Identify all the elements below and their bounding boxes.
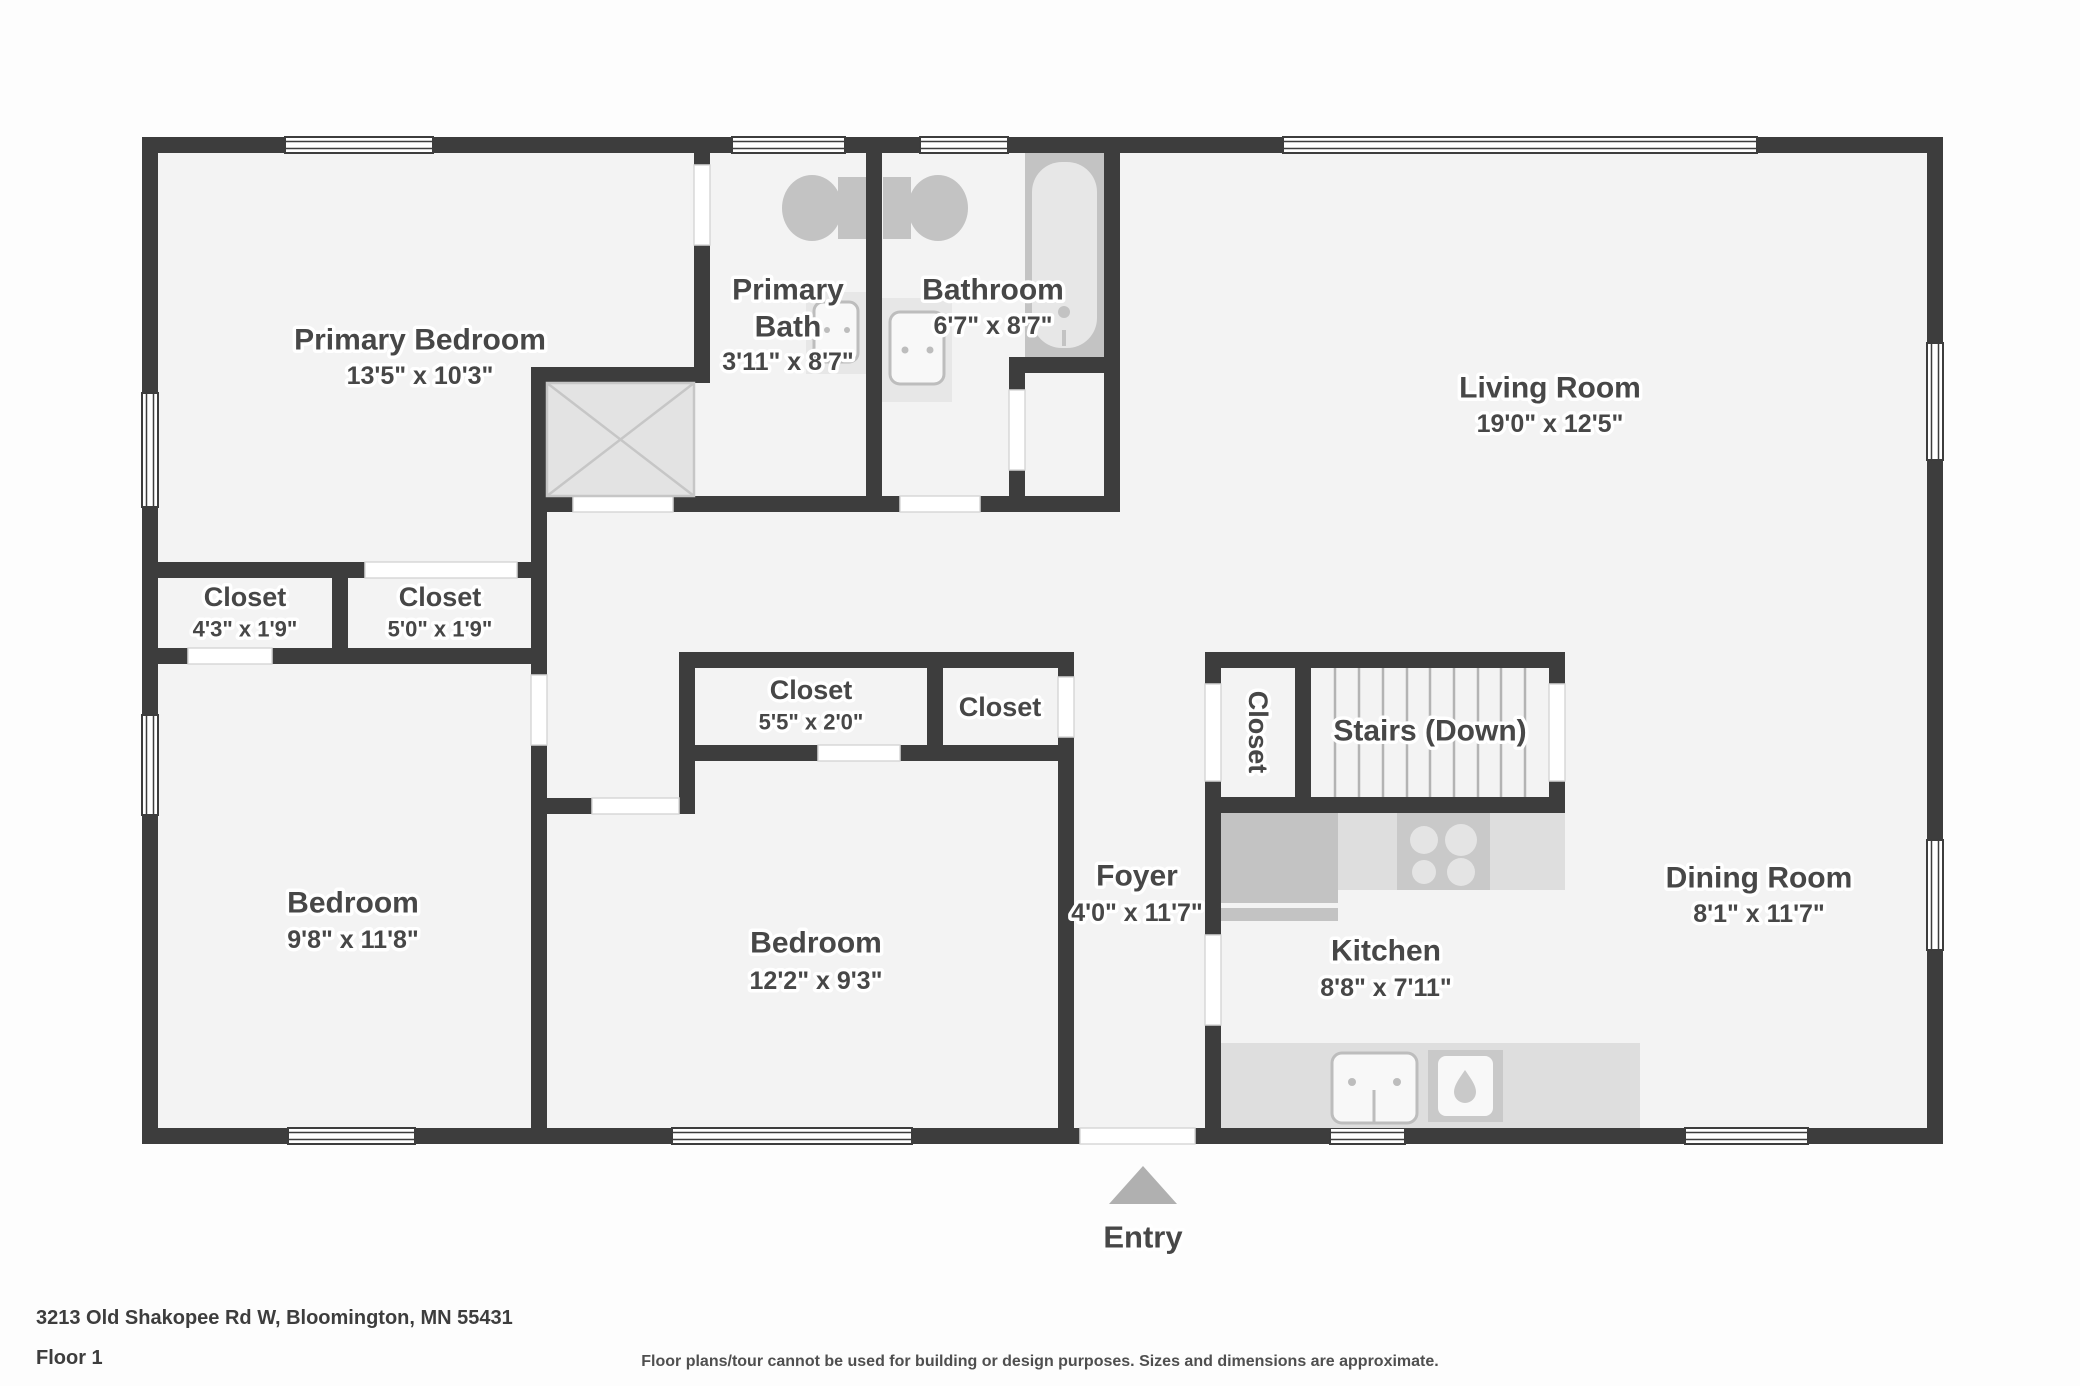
- wall-segment: [1549, 668, 1565, 684]
- room-label-closet-4: Closet: [959, 692, 1042, 722]
- wall-segment: [547, 798, 592, 814]
- wall-segment: [1927, 137, 1943, 1144]
- window: [1283, 137, 1757, 153]
- wall-segment: [142, 137, 158, 1144]
- wall-segment: [980, 496, 1009, 512]
- wall-segment: [1295, 668, 1311, 797]
- window: [1927, 343, 1943, 460]
- room-label-foyer: Foyer: [1096, 860, 1178, 893]
- floor-plan-page: Primary Bedroom 13'5" x 10'3" Primary Ba…: [0, 0, 2080, 1386]
- wall-segment: [695, 652, 1074, 668]
- window: [285, 137, 433, 153]
- window: [920, 137, 1008, 153]
- door-gap: [900, 496, 980, 512]
- wall-segment: [710, 496, 866, 512]
- window: [142, 393, 158, 507]
- room-label-stairs: Stairs (Down): [1333, 715, 1526, 748]
- room-label-primary-bath-2: Bath: [755, 311, 822, 344]
- wall-segment: [1205, 781, 1221, 797]
- window: [672, 1128, 912, 1144]
- room-dims-living-room: 19'0" x 12'5": [1477, 410, 1624, 438]
- wall-segment: [1009, 357, 1120, 373]
- window: [732, 137, 845, 153]
- wall-segment: [673, 496, 710, 512]
- wall-segment: [517, 562, 547, 578]
- door-gap: [818, 745, 900, 761]
- window: [1927, 840, 1943, 950]
- wall-segment: [695, 745, 818, 761]
- wall-segment: [272, 648, 547, 664]
- wall-segment: [1058, 737, 1074, 1128]
- room-dims-foyer: 4'0" x 11'7": [1071, 899, 1203, 927]
- wall-segment: [1104, 137, 1120, 512]
- door-gap: [1205, 935, 1221, 1025]
- room-label-closet-1: Closet: [204, 582, 287, 612]
- room-label-living-room: Living Room: [1459, 372, 1641, 405]
- wall-segment: [531, 745, 547, 1128]
- address-text: 3213 Old Shakopee Rd W, Bloomington, MN …: [36, 1307, 513, 1329]
- kitchen-sink-icon: [1332, 1053, 1417, 1123]
- entry-label: Entry: [1103, 1220, 1183, 1255]
- room-label-dining-room: Dining Room: [1666, 862, 1853, 895]
- door-gap: [1009, 390, 1025, 470]
- stove-icon: [1397, 813, 1490, 890]
- room-dims-closet-3: 5'5" x 2'0": [759, 710, 864, 735]
- door-gap: [188, 648, 272, 664]
- footer: 3213 Old Shakopee Rd W, Bloomington, MN …: [36, 1307, 1439, 1370]
- entry-door-gap: [1080, 1128, 1195, 1144]
- door-gap: [592, 798, 679, 814]
- window: [1685, 1128, 1808, 1144]
- window: [288, 1128, 415, 1144]
- wall-segment: [1205, 813, 1221, 935]
- wall-segment: [882, 496, 900, 512]
- wall-segment: [1058, 652, 1074, 677]
- wall-segment: [332, 578, 348, 648]
- wall-segment: [900, 745, 1074, 761]
- room-dims-kitchen: 8'8" x 7'11": [1320, 974, 1452, 1002]
- door-gap: [1549, 684, 1565, 781]
- floor-label: Floor 1: [36, 1347, 103, 1369]
- wall-segment: [866, 137, 882, 512]
- wall-segment: [531, 367, 710, 383]
- room-label-primary-bath: Primary: [732, 274, 844, 307]
- door-gap: [531, 675, 547, 745]
- room-dims-bedroom-2: 12'2" x 9'3": [750, 967, 883, 995]
- toilet-icon: [782, 175, 866, 241]
- room-label-bedroom-1: Bedroom: [287, 887, 419, 920]
- room-dims-primary-bedroom: 13'5" x 10'3": [347, 362, 494, 390]
- door-gap: [573, 496, 673, 512]
- room-label-closet-2: Closet: [399, 582, 482, 612]
- wall-segment: [1205, 668, 1221, 684]
- wall-segment: [1549, 781, 1565, 797]
- wall-segment: [1205, 797, 1565, 813]
- door-gap: [365, 562, 517, 578]
- wall-segment: [142, 648, 188, 664]
- wall-segment: [1205, 652, 1565, 668]
- room-dims-closet-2: 5'0" x 1'9": [388, 617, 493, 642]
- room-dims-bathroom: 6'7" x 8'7": [933, 312, 1052, 340]
- door-gap: [1205, 684, 1221, 781]
- wall-segment: [531, 664, 547, 675]
- door-gap: [694, 165, 710, 245]
- room-label-bedroom-2: Bedroom: [750, 927, 882, 960]
- wall-segment: [679, 652, 695, 814]
- wall-segment: [547, 496, 573, 512]
- room-dims-dining-room: 8'1" x 11'7": [1693, 900, 1825, 928]
- entry-marker: Entry: [1103, 1166, 1183, 1255]
- room-label-kitchen: Kitchen: [1331, 935, 1441, 968]
- wall-segment: [1009, 357, 1025, 390]
- entry-arrow-icon: [1109, 1166, 1177, 1204]
- room-label-closet-stairs: Closet: [1243, 691, 1273, 774]
- room-dims-closet-1: 4'3" x 1'9": [193, 617, 298, 642]
- wall-segment: [1009, 496, 1120, 512]
- room-dims-primary-bath: 3'11" x 8'7": [722, 348, 854, 376]
- shower-icon: [547, 383, 694, 496]
- floor-plan: Primary Bedroom 13'5" x 10'3" Primary Ba…: [0, 0, 2080, 1386]
- room-label-closet-3: Closet: [770, 675, 853, 705]
- wall-segment: [1205, 1025, 1221, 1128]
- window: [142, 715, 158, 815]
- door-gap: [1058, 677, 1074, 737]
- room-label-primary-bedroom: Primary Bedroom: [294, 324, 546, 357]
- wall-segment: [927, 668, 943, 745]
- toilet-icon: [883, 175, 968, 241]
- wall-segment: [531, 367, 547, 664]
- room-label-bathroom: Bathroom: [922, 274, 1064, 307]
- wall-segment: [142, 562, 365, 578]
- dishwasher-icon: [1428, 1050, 1503, 1122]
- disclaimer-text: Floor plans/tour cannot be used for buil…: [641, 1353, 1438, 1370]
- room-dims-bedroom-1: 9'8" x 11'8": [287, 926, 419, 954]
- window: [1330, 1128, 1405, 1144]
